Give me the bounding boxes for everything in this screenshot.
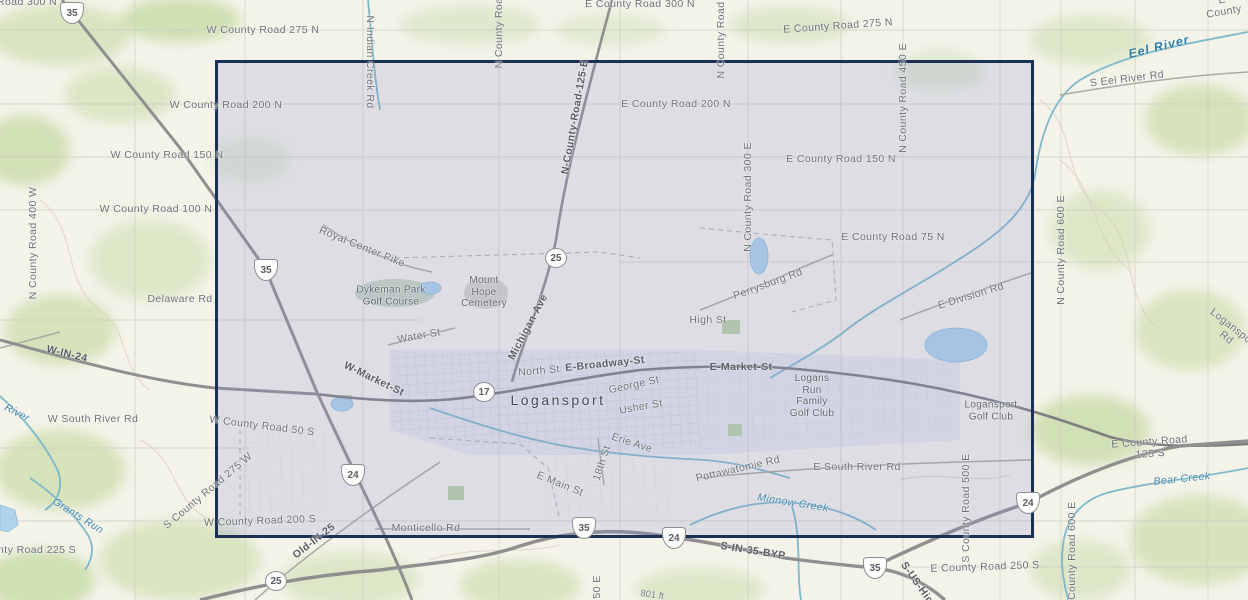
selection-rectangle[interactable] (215, 60, 1034, 538)
map-canvas[interactable]: Road 300 NE County Road 300 NW County Ro… (0, 0, 1248, 600)
